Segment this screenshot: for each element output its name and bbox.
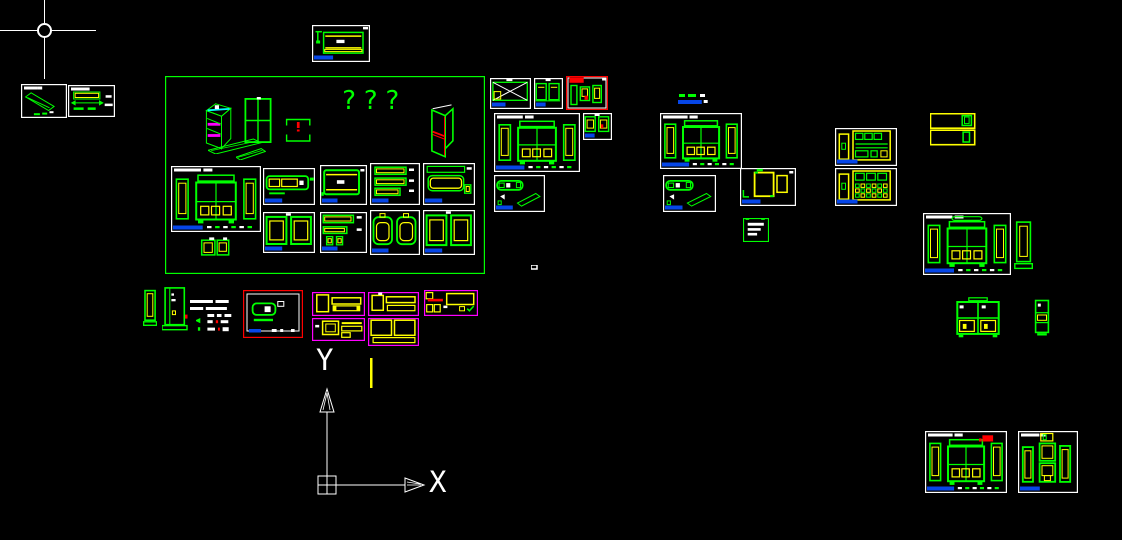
sheet-red-flag[interactable] <box>566 76 608 110</box>
sheet-rounded-pair[interactable] <box>370 210 420 255</box>
sheet-wardrobe-elev-4[interactable] <box>923 213 1011 275</box>
sheet-yellow-cab-2[interactable] <box>835 168 897 206</box>
sheet-red-border[interactable] <box>243 290 303 338</box>
sheet-mini-frames[interactable] <box>583 113 612 140</box>
sheet-wardrobe-elev-2[interactable] <box>494 113 580 172</box>
mini-title-block[interactable] <box>678 94 711 104</box>
iso-door-drawing[interactable] <box>427 102 462 159</box>
ucs-axes-icon <box>310 385 440 500</box>
sheet-plan-view[interactable] <box>740 168 796 206</box>
plank-strip-2[interactable] <box>236 147 266 160</box>
four-pane-panel[interactable] <box>243 97 273 145</box>
sheet-bar-section[interactable] <box>68 85 115 117</box>
sheet-mag-4[interactable] <box>312 318 365 341</box>
model-space-canvas[interactable]: ??? Y X <box>0 0 1122 540</box>
yellow-boxes[interactable] <box>930 113 976 146</box>
tower-detail-2[interactable] <box>143 289 157 328</box>
sheet-hardware-2[interactable] <box>663 175 716 212</box>
annotation-text[interactable] <box>190 300 234 312</box>
annotation-marks[interactable] <box>196 314 234 336</box>
sheet-two-frames-2[interactable] <box>423 210 475 255</box>
sheet-tall-cabinets[interactable] <box>1018 431 1078 493</box>
sheet-wardrobe-elev-1[interactable] <box>171 166 261 232</box>
sheet-two-frames-1[interactable] <box>263 212 315 253</box>
sheet-hardware-1[interactable] <box>494 175 545 212</box>
sheet-mag-3[interactable] <box>424 290 478 316</box>
sheet-bars-cups[interactable] <box>320 212 367 253</box>
sheet-yellow-cab-1[interactable] <box>835 128 897 166</box>
sheet-mag-5[interactable] <box>368 318 419 346</box>
sheet-rounded-top[interactable] <box>423 163 475 205</box>
bracket-detail[interactable] <box>285 118 312 143</box>
green-cabinet-narrow[interactable] <box>1034 299 1050 337</box>
sheet-wardrobe-elev-5[interactable] <box>925 431 1007 493</box>
sheet-mag-2[interactable] <box>368 292 419 316</box>
sheet-mini-cabs[interactable] <box>534 78 563 109</box>
tower-detail-1[interactable] <box>1014 220 1033 272</box>
sheet-crossed-box[interactable] <box>490 78 531 109</box>
green-cabinet-front[interactable] <box>955 297 1001 339</box>
sheet-long-front[interactable] <box>263 168 315 205</box>
sheet-iso-plank[interactable] <box>21 84 67 118</box>
ucs-y-label: Y <box>316 343 333 377</box>
sheet-bars[interactable] <box>370 163 420 205</box>
crosshair-v-line <box>44 0 45 79</box>
door-elevation[interactable] <box>162 287 188 333</box>
sheet-top-center[interactable] <box>312 25 370 62</box>
sheet-mag-1[interactable] <box>312 292 365 316</box>
stamp-block[interactable] <box>743 218 769 242</box>
sheet-board[interactable] <box>320 165 367 205</box>
stray-speck[interactable] <box>531 265 538 270</box>
sheet-wardrobe-elev-3[interactable] <box>660 113 742 169</box>
crosshair-aperture-icon <box>37 23 52 38</box>
yellow-tick-line[interactable] <box>370 358 373 388</box>
mini-cabinet-detail[interactable] <box>200 237 233 258</box>
